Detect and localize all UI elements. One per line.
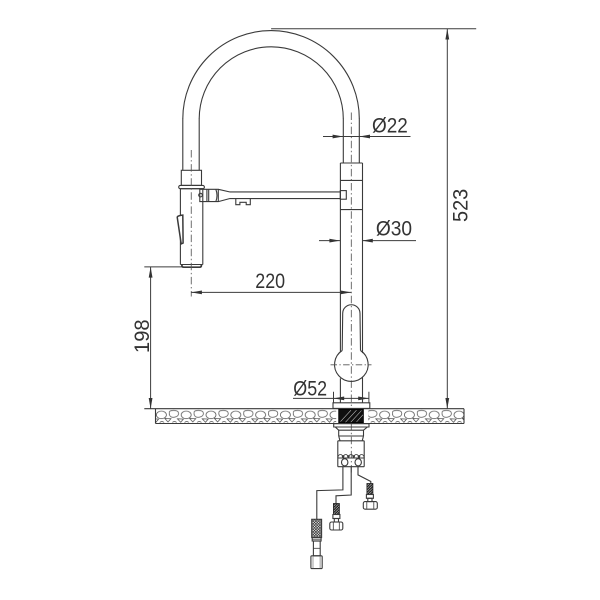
svg-text:Ø30: Ø30 — [376, 217, 412, 240]
svg-text:523: 523 — [450, 189, 473, 222]
svg-text:220: 220 — [255, 270, 285, 293]
svg-text:198: 198 — [131, 319, 154, 353]
svg-text:Ø22: Ø22 — [372, 114, 408, 137]
svg-text:Ø52: Ø52 — [293, 378, 327, 401]
